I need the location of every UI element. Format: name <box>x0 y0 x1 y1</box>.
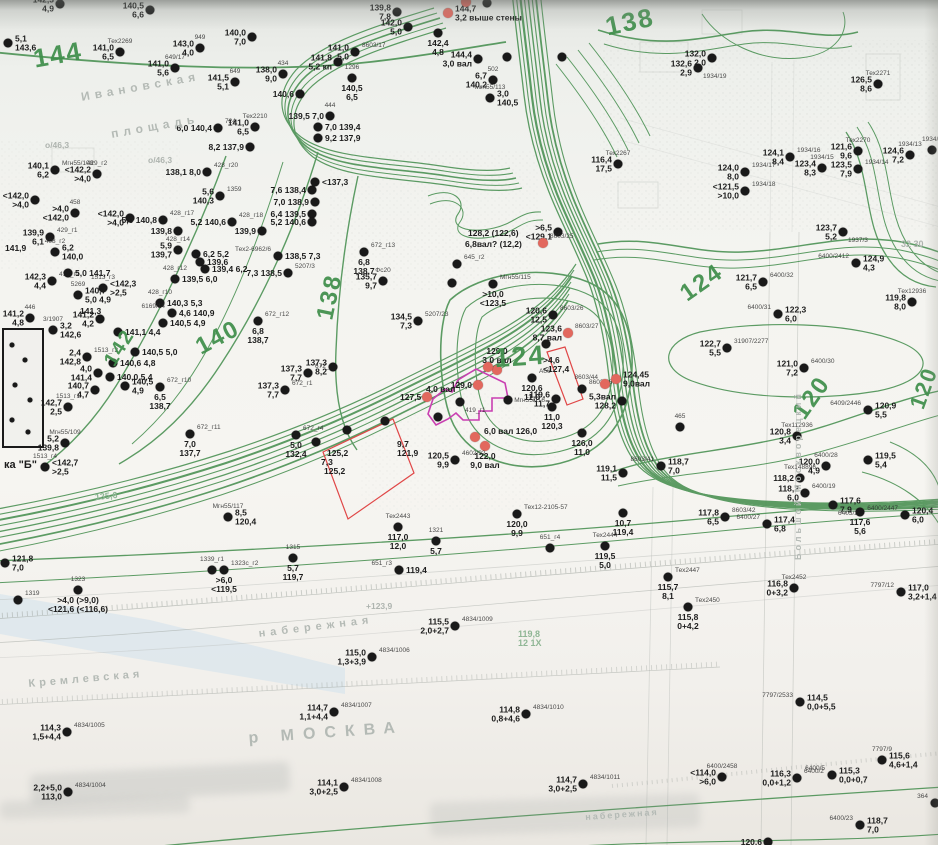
survey-point <box>28 398 33 403</box>
survey-point-label: 139,8 <box>151 227 172 236</box>
survey-point <box>764 838 773 845</box>
survey-point <box>774 310 783 319</box>
red-survey-point <box>443 8 453 18</box>
survey-point <box>93 170 102 179</box>
place-name-label: р МОСКВА <box>248 719 405 748</box>
survey-annotations-layer: 142,34,9140,56,65,1143,6141,06,5Тех22691… <box>0 0 938 845</box>
point-id-label: 1934/18 <box>752 182 776 189</box>
survey-point <box>171 275 180 284</box>
survey-point-label: 124,94,3 <box>863 255 884 272</box>
red-survey-point <box>538 238 548 248</box>
place-name-label: площадь <box>110 112 200 141</box>
point-id-label: 6409/2446 <box>830 401 861 408</box>
survey-point-label: 123,57,9 <box>831 161 852 178</box>
survey-point-label: 7,0137,7 <box>179 440 200 457</box>
survey-point <box>796 698 805 707</box>
survey-point <box>49 326 58 335</box>
survey-point <box>171 64 180 73</box>
survey-point <box>121 382 130 391</box>
survey-point <box>723 344 732 353</box>
survey-point <box>395 566 404 575</box>
survey-point <box>208 566 217 575</box>
survey-point-label: >4,0<142,0 <box>43 205 69 222</box>
point-id-label: Тех2447 <box>675 568 700 575</box>
point-id-label: 6400/2 <box>804 769 824 776</box>
survey-point-label: 118,77,0 <box>668 458 689 475</box>
point-id-label: 1513_г1 <box>56 394 80 401</box>
survey-point-label: 121,76,5 <box>736 274 757 291</box>
survey-point-label: 5,0132,4 <box>285 441 306 458</box>
survey-point <box>64 403 73 412</box>
survey-point <box>201 265 210 274</box>
survey-point <box>474 55 483 64</box>
map-annotation: 127,5 <box>400 393 421 402</box>
survey-point-label: 4,6 140,9 <box>179 309 214 318</box>
survey-point <box>106 373 115 382</box>
survey-point <box>168 309 177 318</box>
point-id-label: Тех2210 <box>243 114 268 121</box>
survey-point <box>10 343 15 348</box>
survey-point <box>822 462 831 471</box>
survey-point-label: 5,9139,7 <box>151 242 172 259</box>
topographic-map: 142,34,9140,56,65,1143,6141,06,5Тех22691… <box>0 0 938 845</box>
survey-point <box>486 94 495 103</box>
survey-point <box>878 756 887 765</box>
point-id-label: 1296 <box>345 65 359 72</box>
survey-point-label: 2,2+5,0113,0 <box>33 784 62 801</box>
point-id-label: 8603/17 <box>362 43 386 50</box>
point-id-label: 8603/25 <box>550 234 574 241</box>
point-id-label: 6169/14 <box>142 304 166 311</box>
survey-point <box>908 298 917 307</box>
point-id-label: Тех2271 <box>866 71 891 78</box>
survey-point <box>759 278 768 287</box>
survey-point-label: <142,0>4,0 <box>98 210 124 227</box>
survey-point <box>308 186 317 195</box>
survey-point-label: 117,65,6 <box>850 518 871 535</box>
survey-point <box>404 23 413 32</box>
survey-point <box>186 430 195 439</box>
survey-point-label: 116,30,0+1,2 <box>762 770 791 787</box>
survey-point-label: 114,50,0+5,5 <box>807 694 836 711</box>
point-id-label: 7797/2533 <box>762 693 793 700</box>
point-id-label: Тех12-2105-57 <box>524 505 568 512</box>
survey-point <box>504 396 513 405</box>
red-survey-point <box>563 328 573 338</box>
survey-point <box>786 153 795 162</box>
contour-elevation-label: 124 <box>675 258 729 307</box>
survey-point-label: 5,0 140,8 <box>122 216 157 225</box>
point-id-label: 444 <box>325 103 336 110</box>
survey-point <box>721 513 730 522</box>
point-id-label: 6400/31 <box>748 305 772 312</box>
point-id-label: 1339_г1 <box>200 557 224 564</box>
point-id-label: 429_г2 <box>87 161 107 168</box>
survey-point-label: 115,30,0+0,7 <box>839 767 868 784</box>
survey-point <box>26 314 35 323</box>
red-survey-point <box>611 374 621 384</box>
point-id-label: Тех2269 <box>108 39 133 46</box>
survey-point <box>901 511 910 520</box>
map-annotation: 6,8вал? (12,2) <box>465 240 522 249</box>
survey-point <box>379 277 388 286</box>
survey-point-label: 3,0140,5 <box>497 90 518 107</box>
contour-elevation-label: 124 <box>493 340 546 374</box>
survey-point <box>156 383 165 392</box>
survey-point-label: 5,2139,8 <box>38 435 59 452</box>
survey-point-label: 117,86,5 <box>698 509 719 526</box>
survey-point <box>340 783 349 792</box>
survey-point <box>224 513 233 522</box>
survey-point <box>31 196 40 205</box>
point-id-label: 651_г3 <box>372 561 392 568</box>
survey-point <box>274 252 283 261</box>
point-id-label: 446 <box>25 305 36 312</box>
survey-point-label: 4,0141,4 <box>71 365 92 382</box>
survey-point-label: 134,57,3 <box>391 313 412 330</box>
survey-point <box>434 413 443 422</box>
survey-point-label: 7,0 139,4 <box>325 123 360 132</box>
survey-point <box>546 544 555 553</box>
point-id-label: 1323 <box>71 577 85 584</box>
survey-point <box>829 501 838 510</box>
survey-point <box>14 596 23 605</box>
survey-point-label: 135,79,7 <box>356 273 377 290</box>
survey-point <box>258 227 267 236</box>
survey-point <box>334 58 343 67</box>
place-name-label: набережная <box>258 614 374 640</box>
survey-point-label: 141,24,8 <box>3 310 24 327</box>
survey-point <box>4 39 13 48</box>
survey-point <box>64 269 73 278</box>
survey-point <box>48 277 57 286</box>
survey-point <box>348 74 357 83</box>
place-name-label: Большой Москворецкий <box>793 391 803 560</box>
survey-point-label: 121,07,2 <box>777 360 798 377</box>
map-annotation: 141,9 <box>5 244 26 253</box>
survey-point <box>296 90 305 99</box>
survey-point-label: 115,01,3+3,9 <box>337 649 366 666</box>
survey-point-label: 120,46,0 <box>912 507 933 524</box>
survey-point <box>330 708 339 717</box>
map-annotation: 4,0 вал <box>426 385 455 394</box>
survey-point-label: 141,85,2 кп <box>308 54 332 71</box>
survey-point <box>23 358 28 363</box>
point-id-label: 7797/9 <box>872 747 892 754</box>
survey-point-label: 140,5 4,9 <box>170 319 205 328</box>
survey-point-label: 115,80+4,2 <box>677 613 699 630</box>
survey-point-label: 139,9 <box>235 227 256 236</box>
survey-point-label: 6,8138,7 <box>247 327 268 344</box>
point-id-label: 458 <box>70 200 81 207</box>
place-name-label: Кремлевская <box>28 668 144 690</box>
point-id-label: 651_г4 <box>540 535 560 542</box>
point-id-label: 428_г14 <box>166 237 190 244</box>
map-annotation: 119,812 1Х <box>518 630 542 648</box>
survey-point-label: 119,55,0 <box>595 552 616 569</box>
survey-point <box>528 374 537 383</box>
point-id-label: 645_г2 <box>464 255 484 262</box>
survey-point-label: 120,612,5 <box>526 307 547 324</box>
survey-point-label: 5,3вал128,2 <box>589 393 616 410</box>
survey-point <box>818 164 827 173</box>
point-id-label: 1323с_г2 <box>231 561 258 568</box>
survey-point <box>708 54 717 63</box>
survey-point-label: 114,13,0+2,5 <box>309 779 338 796</box>
point-id-label: Тех2270 <box>846 138 871 145</box>
point-id-label: Мгн55/113 <box>475 85 506 92</box>
survey-point <box>368 653 377 662</box>
survey-point <box>828 771 837 780</box>
survey-point <box>251 123 260 132</box>
point-id-label: 1934/13 <box>898 142 922 149</box>
survey-point <box>343 426 352 435</box>
survey-point-label: 140,56,5 <box>341 84 362 101</box>
survey-point-label: <137,3 <box>322 178 348 187</box>
survey-point <box>676 423 685 432</box>
survey-point-label: 119,88,0 <box>885 294 906 311</box>
survey-point <box>897 588 906 597</box>
survey-point <box>216 192 225 201</box>
survey-point-label: 118,77,0 <box>867 817 888 834</box>
survey-point <box>311 198 320 207</box>
point-id-label: 5207/3 <box>295 264 315 271</box>
point-id-label: 428_г18 <box>239 213 263 220</box>
survey-point <box>51 166 60 175</box>
survey-point-label: 116,80+3,2 <box>766 580 788 597</box>
survey-point-label: 7,0 138,9 <box>274 198 309 207</box>
point-id-label: Мгн55/109 <box>49 430 80 437</box>
point-id-label: 8603/27 <box>575 324 599 331</box>
survey-point <box>793 774 802 783</box>
survey-point <box>453 260 462 269</box>
survey-point <box>856 508 865 517</box>
survey-point <box>312 438 321 447</box>
point-id-label: 364 <box>917 794 928 801</box>
survey-point <box>94 369 103 378</box>
survey-point-label: 2,4142,8 <box>60 349 81 366</box>
survey-point-label: 126,011,0 <box>571 439 592 456</box>
survey-point-label: 142,34,4 <box>25 273 46 290</box>
point-id-label: Фс20 <box>375 268 390 275</box>
map-annotation: 128,2 (122,6) <box>468 229 519 238</box>
survey-point <box>601 542 610 551</box>
survey-point <box>741 187 750 196</box>
point-id-label: 672_г10 <box>167 378 191 385</box>
survey-point <box>763 520 772 529</box>
survey-point <box>619 509 628 518</box>
survey-point <box>928 146 937 155</box>
survey-point-label: 140,3 5,3 <box>167 299 202 308</box>
point-id-label: 31907/2277 <box>734 339 768 346</box>
survey-point <box>63 728 72 737</box>
point-id-label: 6400/28 <box>814 453 838 460</box>
survey-point <box>618 397 627 406</box>
survey-point <box>451 622 460 631</box>
survey-point <box>174 246 183 255</box>
point-id-label: 429_г1 <box>57 228 77 235</box>
map-annotation: 9,7121,9 <box>397 440 418 457</box>
point-id-label: 1315 <box>286 545 300 552</box>
survey-point-label: 140,5 5,0 <box>142 348 177 357</box>
survey-point-label: 140,16,2 <box>28 162 49 179</box>
survey-point-label: <142,2>4,0 <box>65 166 91 183</box>
survey-point <box>854 165 863 174</box>
point-id-label: 408_г2 <box>45 239 65 246</box>
survey-point-label: 120,6 <box>741 838 762 845</box>
point-id-label: 672_г12 <box>265 312 289 319</box>
survey-point-label: 8,2 137,9 <box>209 143 244 152</box>
survey-point-label: 117,012,0 <box>388 533 409 550</box>
survey-point-label: 140,75,0 4,9 <box>85 287 111 304</box>
survey-point-label: 122,36,0 <box>785 306 806 323</box>
survey-point-label: 6,5138,7 <box>149 393 170 410</box>
survey-point-label: <142,7>2,5 <box>52 459 78 476</box>
survey-point <box>281 386 290 395</box>
survey-point <box>314 123 323 132</box>
survey-point-label: 114,71,1+4,4 <box>299 704 328 721</box>
point-id-label: 6400/2458 <box>707 764 738 771</box>
survey-point-label: 119,4 <box>406 566 427 575</box>
survey-point <box>292 431 301 440</box>
survey-point <box>231 78 240 87</box>
survey-point <box>56 0 65 9</box>
point-id-label: Мгн55/117 <box>213 504 244 511</box>
survey-point-label: 116,417,5 <box>591 156 612 173</box>
survey-point-label: 142,34,9 <box>33 0 54 13</box>
survey-point <box>13 383 18 388</box>
point-id-label: 8603/26 <box>560 306 584 313</box>
survey-point <box>839 228 848 237</box>
survey-point-label: 141,55,1 <box>208 74 229 91</box>
survey-point <box>284 269 293 278</box>
survey-point <box>279 70 288 79</box>
point-id-label: 672_г1 <box>292 381 312 388</box>
survey-point-label: 126,58,6 <box>851 76 872 93</box>
red-survey-point <box>470 432 480 442</box>
survey-point <box>906 151 915 160</box>
survey-point-label: 139,5 7,0 <box>289 112 324 121</box>
survey-point <box>434 29 443 38</box>
point-id-label: Мгн55/116 <box>514 398 545 405</box>
point-id-label: 724 <box>225 119 236 126</box>
survey-point <box>664 573 673 582</box>
survey-point <box>718 773 727 782</box>
survey-point-label: 9,2 137,9 <box>325 134 360 143</box>
survey-point-label: 5,2 140,6 <box>191 218 226 227</box>
map-annotation: >4,6<127,4 <box>543 356 569 373</box>
survey-point <box>71 209 80 218</box>
survey-point <box>61 439 70 448</box>
survey-point-label: 139,5 6,0 <box>182 275 217 284</box>
survey-point <box>381 417 390 426</box>
map-annotation: 135,6 <box>95 491 118 502</box>
survey-point-label: 123,75,2 <box>816 224 837 241</box>
survey-point-label: 114,31,5+4,4 <box>32 724 61 741</box>
point-id-label: 672_г4 <box>303 426 323 433</box>
map-annotation: о/46,3 <box>148 156 172 165</box>
survey-point-label: 138,5 7,3 <box>285 252 320 261</box>
survey-point <box>83 353 92 362</box>
point-id-label: 7797/12 <box>871 583 895 590</box>
survey-point-label: 114,73,0+2,5 <box>548 776 577 793</box>
survey-point <box>360 248 369 257</box>
survey-point-label: 140,54,9 <box>132 378 153 395</box>
point-id-label: 949 <box>195 35 206 42</box>
survey-point <box>513 510 522 519</box>
red-survey-point <box>483 362 493 372</box>
red-survey-point <box>600 379 610 389</box>
survey-point <box>684 603 693 612</box>
point-id-label: 6400/19 <box>812 484 836 491</box>
survey-point-label: >6,0<119,5 <box>211 576 237 593</box>
contour-elevation-label: 144 <box>31 35 85 74</box>
survey-point <box>694 64 703 73</box>
survey-point-label: <142,3>2,5 <box>110 280 136 297</box>
survey-point-label: <114,0>6,0 <box>690 769 716 786</box>
place-name-label: набережная <box>585 807 659 822</box>
point-id-label: 4834/1009 <box>462 617 493 624</box>
survey-point <box>558 53 567 62</box>
survey-point-label: 144,43,0 вал <box>443 51 472 68</box>
survey-point-label: 118,2 <box>773 474 794 483</box>
point-id-label: 6400/23 <box>830 816 854 823</box>
place-name-label: Ивановская <box>80 69 201 104</box>
survey-point <box>174 227 183 236</box>
survey-point-label: 10,7119,4 <box>613 519 634 536</box>
survey-point-label: 117,03,2+1,4 <box>908 584 937 601</box>
contour-elevation-label: 120 <box>904 363 938 412</box>
survey-point <box>329 363 338 372</box>
map-annotation: 125,2 <box>324 467 345 476</box>
point-id-label: 1319 <box>25 591 39 598</box>
survey-point <box>657 462 666 471</box>
survey-point-label: 132,62,9 <box>671 60 692 77</box>
point-id-label: 6400/32 <box>770 273 794 280</box>
survey-point <box>394 523 403 532</box>
survey-point-label: 121,87,0 <box>12 555 33 572</box>
survey-point <box>503 53 512 62</box>
point-id-label: 4834/1007 <box>341 703 372 710</box>
survey-point-label: 120,95,5 <box>875 402 896 419</box>
survey-point <box>874 80 883 89</box>
survey-point-label: 5,7 <box>430 547 442 556</box>
survey-point <box>116 48 125 57</box>
point-id-label: Тех2452 <box>782 575 807 582</box>
survey-point <box>254 317 263 326</box>
point-id-label: 4834/1010 <box>533 705 564 712</box>
survey-point <box>41 463 50 472</box>
survey-point <box>214 124 223 133</box>
survey-point-label: <121,5>10,0 <box>713 183 739 200</box>
survey-point <box>864 406 873 415</box>
point-id-label: Тех2267 <box>606 151 631 158</box>
survey-point <box>196 44 205 53</box>
survey-point <box>1 559 10 568</box>
survey-point <box>414 317 423 326</box>
survey-point-label: >4,0 (>9,0)<121,6 (<116,6) <box>48 596 108 613</box>
map-annotation: о/46,3 <box>45 141 69 150</box>
survey-point-label: 115,64,6+1,4 <box>889 752 918 769</box>
survey-point-label: 115,78,1 <box>658 583 679 600</box>
survey-point-label: 142,05,0 <box>381 19 402 36</box>
survey-point <box>579 780 588 789</box>
point-id-label: 5207/23 <box>425 312 449 319</box>
survey-point <box>741 168 750 177</box>
survey-point-label: 122,75,5 <box>700 340 721 357</box>
survey-point <box>451 456 460 465</box>
survey-point-label: 119,111,5 <box>596 465 617 482</box>
